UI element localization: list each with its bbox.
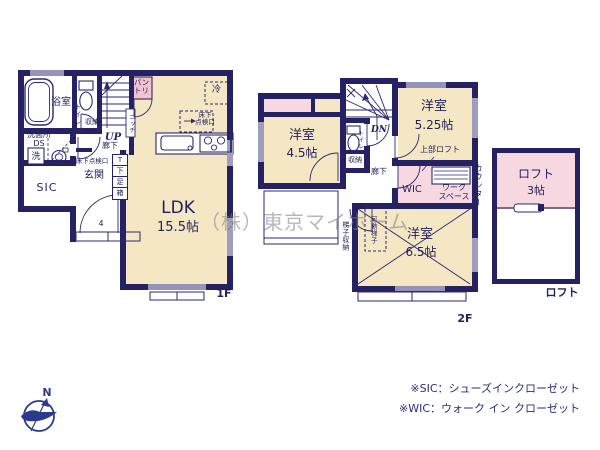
- watermark: （株）東京マイホーム: [200, 211, 420, 233]
- room-label-washroom: 洗面所 DS: [22, 131, 56, 149]
- label-underfloor-hatch-kitchen: 床下 点検口: [194, 112, 216, 127]
- label-washer: 洗: [28, 152, 44, 162]
- room-size-525: 5.25帖: [411, 119, 457, 132]
- closet-strip-beige: [313, 98, 342, 113]
- counter-desk-icon: [432, 167, 470, 184]
- label-storage-2f: 収納: [342, 157, 368, 165]
- room-label-entrance: 玄関: [82, 170, 106, 181]
- floorplan-canvas: 浴室 トイレ 収納 洗面所 DS 洗 UP 廊下 床下点検口 玄関 T 下 足 …: [0, 0, 600, 450]
- label-niche: ニッチ: [127, 111, 134, 137]
- shoebox-cell-3: 箱: [112, 187, 128, 200]
- floor-label-loft: ロフト: [542, 287, 582, 299]
- room-label-toilet-2f: トイレ: [356, 127, 363, 153]
- note-wic: ※WIC：ウォーク イン クローゼット: [360, 399, 580, 419]
- room-label-toilet-1f: トイレ: [73, 99, 81, 129]
- room-label-loft: ロフト: [511, 168, 561, 181]
- label-toilet-storage-1f: 収納: [82, 119, 102, 127]
- note-sic: ※SIC：シューズインクローゼット: [360, 379, 580, 399]
- label-porch-steps: 4: [95, 220, 107, 229]
- room-label-45: 洋室: [287, 129, 317, 144]
- label-workspace: ワーク スペース: [437, 184, 471, 202]
- label-upper-loft: 上部ロフト: [418, 146, 462, 155]
- label-underfloor-hatch-hall: 床下点検口: [72, 158, 112, 165]
- room-label-bath: 浴室: [46, 97, 76, 108]
- room-label-ldk: LDK: [155, 199, 201, 218]
- room-size-65: 6.5帖: [401, 246, 441, 259]
- label-hallway-2f: 廊下: [369, 168, 389, 177]
- compass-north-label: N: [40, 387, 54, 399]
- room-size-ldk: 15.5帖: [152, 221, 204, 236]
- compass-icon: [21, 398, 57, 431]
- room-size-45: 4.5帖: [283, 147, 321, 160]
- room-label-sic: SIC: [34, 182, 60, 194]
- room-label-wic: WIC: [399, 184, 425, 195]
- label-counter: カウンター: [473, 156, 482, 214]
- room-label-525: 洋室: [419, 100, 449, 115]
- floor-label-1f: 1F: [211, 288, 237, 300]
- label-fridge: 冷: [205, 85, 228, 95]
- closet-strip-pink: [262, 98, 311, 113]
- label-dn: DN: [368, 125, 390, 135]
- label-hallway-1f: 廊下: [100, 142, 120, 151]
- label-pantry: パン トリー: [131, 79, 152, 104]
- floor1-stairs: [102, 76, 129, 128]
- legend-notes: ※SIC：シューズインクローゼット ※WIC：ウォーク イン クローゼット: [360, 379, 580, 419]
- room-size-loft: 3帖: [515, 185, 557, 197]
- floor-label-2f: 2F: [452, 313, 478, 325]
